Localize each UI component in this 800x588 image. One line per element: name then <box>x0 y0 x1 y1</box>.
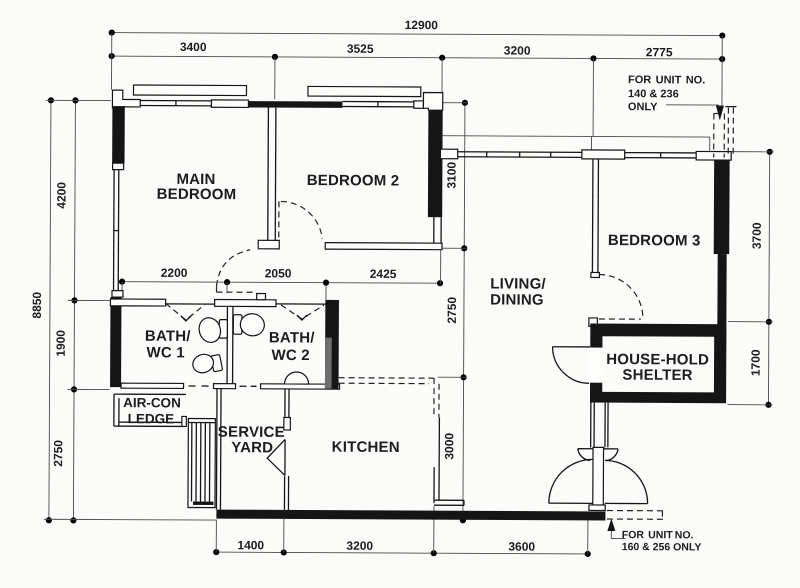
svg-text:160 & 256 ONLY: 160 & 256 ONLY <box>622 541 702 553</box>
svg-text:1900: 1900 <box>54 330 68 357</box>
svg-text:3100: 3100 <box>445 162 459 189</box>
svg-text:1400: 1400 <box>237 538 264 552</box>
svg-text:2200: 2200 <box>161 266 188 280</box>
svg-text:4200: 4200 <box>54 182 68 209</box>
svg-text:8850: 8850 <box>30 292 44 319</box>
svg-text:12900: 12900 <box>405 18 439 32</box>
svg-text:FOR UNIT NO.: FOR UNIT NO. <box>628 74 705 86</box>
svg-text:WC 1: WC 1 <box>147 344 185 361</box>
svg-text:1700: 1700 <box>749 349 763 376</box>
svg-text:BEDROOM: BEDROOM <box>157 186 237 203</box>
svg-text:FOR UNIT NO.: FOR UNIT NO. <box>622 529 694 541</box>
svg-text:BEDROOM 2: BEDROOM 2 <box>307 172 400 189</box>
svg-text:BATH/: BATH/ <box>269 329 315 346</box>
svg-text:3200: 3200 <box>504 44 531 58</box>
svg-text:3400: 3400 <box>180 40 207 54</box>
svg-text:140 & 236: 140 & 236 <box>628 88 679 100</box>
svg-text:2425: 2425 <box>370 267 397 281</box>
svg-text:SHELTER: SHELTER <box>622 367 692 384</box>
svg-text:3600: 3600 <box>508 540 535 554</box>
svg-text:KITCHEN: KITCHEN <box>332 439 400 456</box>
svg-text:2750: 2750 <box>51 440 65 467</box>
svg-text:ONLY: ONLY <box>628 101 658 113</box>
svg-text:BEDROOM 3: BEDROOM 3 <box>608 232 701 249</box>
svg-text:LEDGE: LEDGE <box>128 411 175 426</box>
svg-text:BATH/: BATH/ <box>145 328 191 345</box>
svg-text:3700: 3700 <box>750 222 764 249</box>
svg-text:2050: 2050 <box>265 266 292 280</box>
svg-text:2750: 2750 <box>445 297 459 324</box>
svg-text:DINING: DINING <box>490 291 544 308</box>
svg-text:WC 2: WC 2 <box>272 347 310 364</box>
svg-text:LIVING/: LIVING/ <box>490 275 546 292</box>
svg-text:2775: 2775 <box>646 45 673 59</box>
svg-text:3200: 3200 <box>346 539 373 553</box>
svg-text:YARD: YARD <box>231 439 273 456</box>
svg-text:AIR-CON: AIR-CON <box>123 395 181 410</box>
svg-text:3525: 3525 <box>347 42 374 56</box>
svg-text:3000: 3000 <box>442 433 456 460</box>
